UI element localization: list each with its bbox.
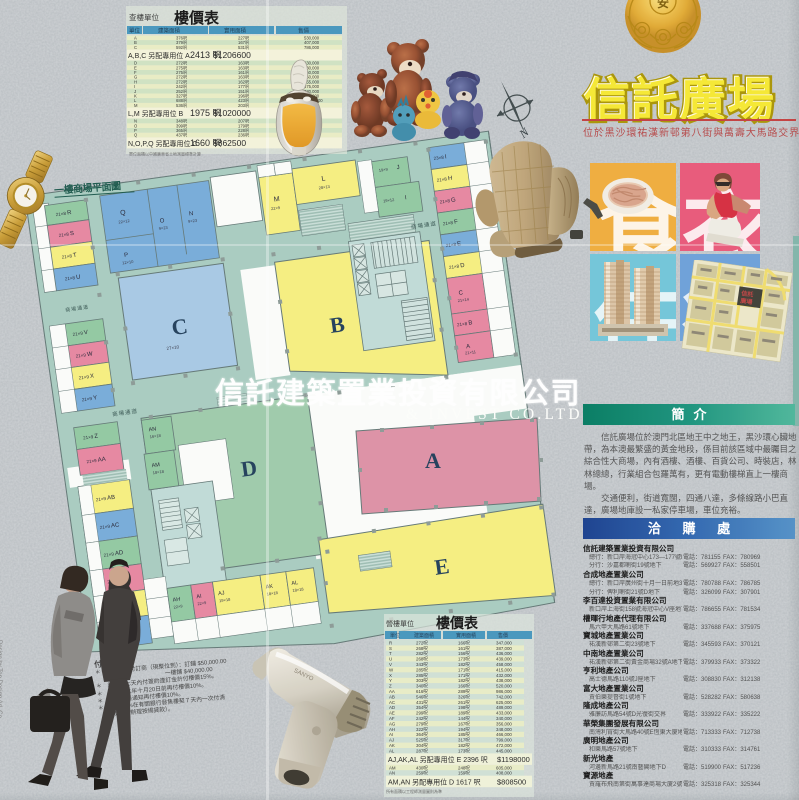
svg-text:售價: 售價 [498,632,508,639]
svg-text:$862500: $862500 [213,138,246,148]
svg-text:AM,AN 另配專用位 D 1617 呎: AM,AN 另配專用位 D 1617 呎 [388,778,481,787]
svg-text:466,000: 466,000 [496,732,512,737]
svg-text:742,000: 742,000 [496,694,512,699]
svg-text:L,M 另配專用位 B: L,M 另配專用位 B [128,109,184,118]
svg-text:489,000: 489,000 [496,705,512,710]
svg-text:實用面積: 實用面積 [224,26,247,34]
svg-text:415,000: 415,000 [496,667,512,672]
svg-text:625,000: 625,000 [496,700,512,705]
svg-text:AJ,AK,AL 另配專用位 E 2396 呎: AJ,AK,AL 另配專用位 E 2396 呎 [388,755,488,764]
svg-text:439,000: 439,000 [496,657,512,662]
svg-text:387,000: 387,000 [496,646,512,651]
svg-text:520,000: 520,000 [496,684,512,689]
svg-text:所有面積以工程師測量圖則為準: 所有面積以工程師測量圖則為準 [386,788,442,794]
svg-text:472,000: 472,000 [496,743,512,748]
svg-text:986,000: 986,000 [496,689,512,694]
svg-text:356,000: 356,000 [496,721,512,726]
svg-text:樓價表: 樓價表 [436,615,479,632]
svg-text:445,000: 445,000 [496,748,512,753]
svg-text:售價: 售價 [298,26,310,34]
svg-text:$1020000: $1020000 [213,108,251,118]
svg-text:$1198000: $1198000 [497,755,530,764]
svg-text:N,O,P,Q 另配專用位 C: N,O,P,Q 另配專用位 C [128,139,198,148]
svg-text:347,000: 347,000 [496,640,512,645]
svg-text:營樓單位: 營樓單位 [386,619,414,628]
svg-text:安: 安 [657,0,669,10]
svg-text:M: M [134,103,138,108]
svg-text:340,000: 340,000 [496,716,512,721]
svg-text:AG: AG [389,721,396,726]
svg-text:436,000: 436,000 [496,651,512,656]
svg-text:$808500: $808500 [497,778,526,787]
svg-text:408,000: 408,000 [496,771,512,776]
svg-text:實用面積: 實用面積 [456,632,476,639]
svg-text:查樓單位: 查樓單位 [129,12,159,22]
svg-text:799,000: 799,000 [496,738,512,743]
svg-text:348,000: 348,000 [496,727,512,732]
svg-text:AM: AM [389,765,396,770]
svg-text:$1206600: $1206600 [213,50,251,60]
svg-text:單位面積以中國廣東省土地測量標準計算: 單位面積以中國廣東省土地測量標準計算 [129,150,201,156]
svg-text:433,000: 433,000 [496,711,512,716]
svg-text:605,000: 605,000 [496,765,512,770]
svg-text:單位: 單位 [390,632,400,639]
svg-text:樓價表: 樓價表 [174,9,220,27]
svg-text:A: A [425,448,441,473]
svg-text:建築面積: 建築面積 [414,632,434,639]
svg-text:438,000: 438,000 [496,678,512,683]
svg-text:432,000: 432,000 [496,673,512,678]
svg-text:786,000: 786,000 [304,45,320,50]
svg-text:C: C [134,45,137,50]
svg-text:單位: 單位 [129,26,141,34]
svg-text:建築面積: 建築面積 [158,26,181,34]
svg-text:458,000: 458,000 [496,662,512,667]
svg-text:A,B,C 另配專用位 A: A,B,C 另配專用位 A [128,51,190,60]
